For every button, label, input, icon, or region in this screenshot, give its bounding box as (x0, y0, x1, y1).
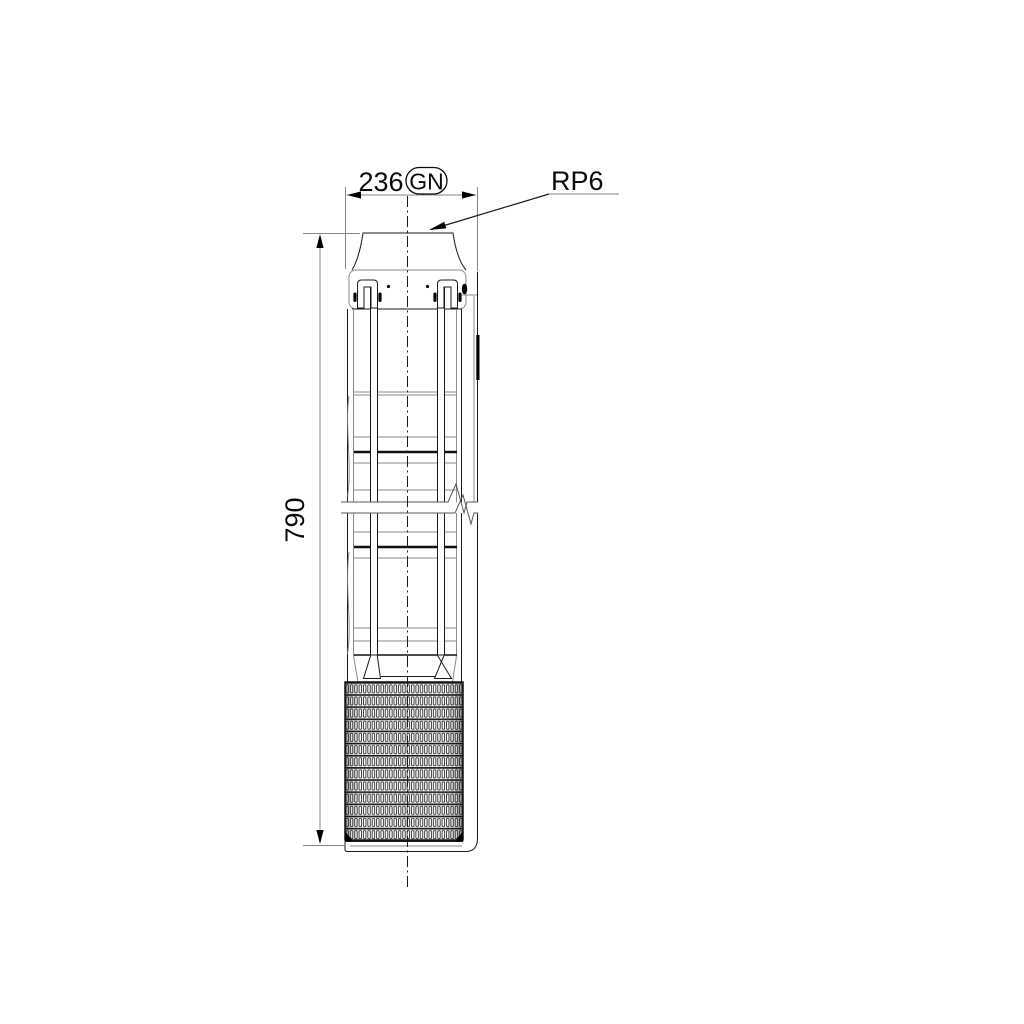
cable-clamp (462, 284, 467, 295)
power-cable (476, 335, 479, 380)
width-arrow-right (462, 191, 476, 198)
screw-dot-right (426, 285, 429, 288)
suction-interconnector (354, 655, 457, 682)
connection-label: RP6 (551, 166, 604, 196)
cable-guard-plate (462, 272, 480, 852)
dim-width-badge: GN (409, 169, 444, 195)
leader-arrowhead (429, 222, 446, 230)
discharge-pipe (352, 233, 466, 270)
pump-body (341, 233, 480, 852)
dim-height-value: 790 (280, 497, 310, 542)
height-arrow-top (316, 234, 323, 248)
height-arrow-bottom (316, 830, 323, 844)
pump-outline-drawing: 236 GN 790 RP6 (0, 0, 1024, 1024)
drawing-page: 236 GN 790 RP6 (0, 0, 1024, 1024)
dim-width-value: 236 (358, 167, 403, 197)
leader-rp6 (429, 194, 619, 230)
suction-strainer (345, 682, 463, 840)
screw-dot-left (387, 285, 390, 288)
